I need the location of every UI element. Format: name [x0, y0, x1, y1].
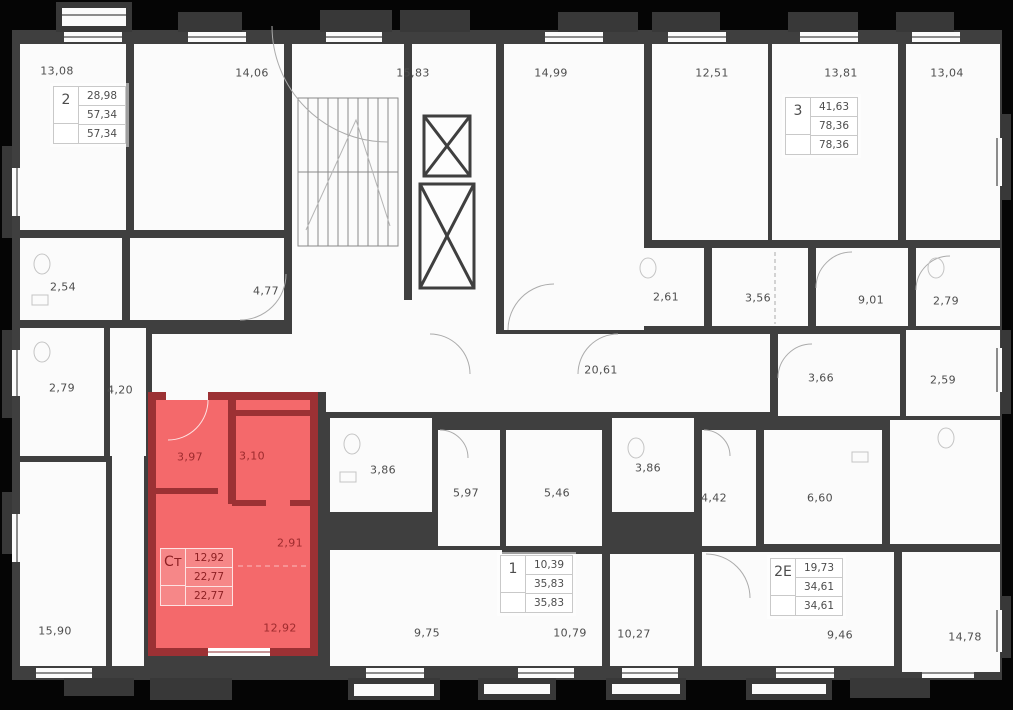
room-area-label: 2,79	[933, 295, 959, 308]
room-area-label: 12,92	[263, 622, 297, 635]
room-area-label: 3,10	[239, 450, 265, 463]
room-area-label: 9,75	[414, 627, 440, 640]
room-area-label: 2,91	[277, 537, 303, 550]
room-area-label: 14,06	[235, 67, 269, 80]
apartment-area-value: 35,83	[526, 594, 572, 612]
apartment-area-value: 22,77	[186, 568, 232, 587]
room-area-label: 3,86	[370, 464, 396, 477]
room-area-label: 3,97	[177, 451, 203, 464]
apartment-type-label: 3	[786, 98, 811, 154]
apartment-area-value: 78,36	[811, 117, 857, 136]
apartment-area-value: 57,34	[79, 106, 125, 125]
apartment-area-value: 57,34	[79, 125, 125, 143]
apartment-area-value: 34,61	[796, 597, 842, 615]
room-area-label: 4,77	[253, 285, 279, 298]
apartment-info-table: 2Е19,7334,6134,61	[770, 558, 843, 616]
apartment-area-value: 28,98	[79, 87, 125, 106]
room-area-label: 4,42	[701, 492, 727, 505]
apartment-info-table: 341,6378,3678,36	[785, 97, 858, 155]
room-area-label: 20,61	[584, 364, 618, 377]
apartment-type-label: 1	[501, 556, 526, 612]
room-area-label: 2,59	[930, 374, 956, 387]
apartment-type-label: 2Е	[771, 559, 796, 615]
apartment-info-table: 110,3935,8335,83	[500, 555, 573, 613]
room-area-label: 4,20	[107, 384, 133, 397]
room-area-label: 14,78	[948, 631, 982, 644]
room-area-label: 9,46	[827, 629, 853, 642]
apartment-area-value: 35,83	[526, 575, 572, 594]
room-area-label: 13,08	[40, 65, 74, 78]
room-area-label: 10,79	[553, 627, 587, 640]
apartment-area-value: 34,61	[796, 578, 842, 597]
room-area-label: 3,56	[745, 292, 771, 305]
room-area-label: 3,66	[808, 372, 834, 385]
room-area-label: 5,97	[453, 487, 479, 500]
room-area-label: 6,60	[807, 492, 833, 505]
apartment-area-value: 12,92	[186, 549, 232, 568]
apartment-area-value: 19,73	[796, 559, 842, 578]
room-area-label: 10,27	[617, 628, 651, 641]
floor-plan: 13,0814,0615,8314,9912,5113,8113,042,544…	[0, 0, 1013, 710]
room-area-label: 15,90	[38, 625, 72, 638]
elevator-icon	[420, 116, 474, 288]
apartment-area-value: 78,36	[811, 136, 857, 154]
apartment-area-value: 22,77	[186, 587, 232, 605]
room-area-label: 2,61	[653, 291, 679, 304]
apartment-area-value: 41,63	[811, 98, 857, 117]
room-area-label: 15,83	[396, 67, 430, 80]
selected-apartment-unit[interactable]	[148, 392, 318, 656]
apartment-info-table: Ст12,9222,7722,77	[160, 548, 233, 606]
apartment-type-label: 2	[54, 87, 79, 143]
room-area-label: 3,86	[635, 462, 661, 475]
room-area-label: 5,46	[544, 487, 570, 500]
room-area-label: 13,04	[930, 67, 964, 80]
room-area-label: 12,51	[695, 67, 729, 80]
room-area-label: 14,99	[534, 67, 568, 80]
room-area-label: 2,79	[49, 382, 75, 395]
apartment-type-label: Ст	[161, 549, 186, 605]
room-area-label: 13,81	[824, 67, 858, 80]
apartment-info-table: 228,9857,3457,34	[53, 86, 126, 144]
apartment-area-value: 10,39	[526, 556, 572, 575]
room-area-label: 9,01	[858, 294, 884, 307]
room-area-label: 2,54	[50, 281, 76, 294]
